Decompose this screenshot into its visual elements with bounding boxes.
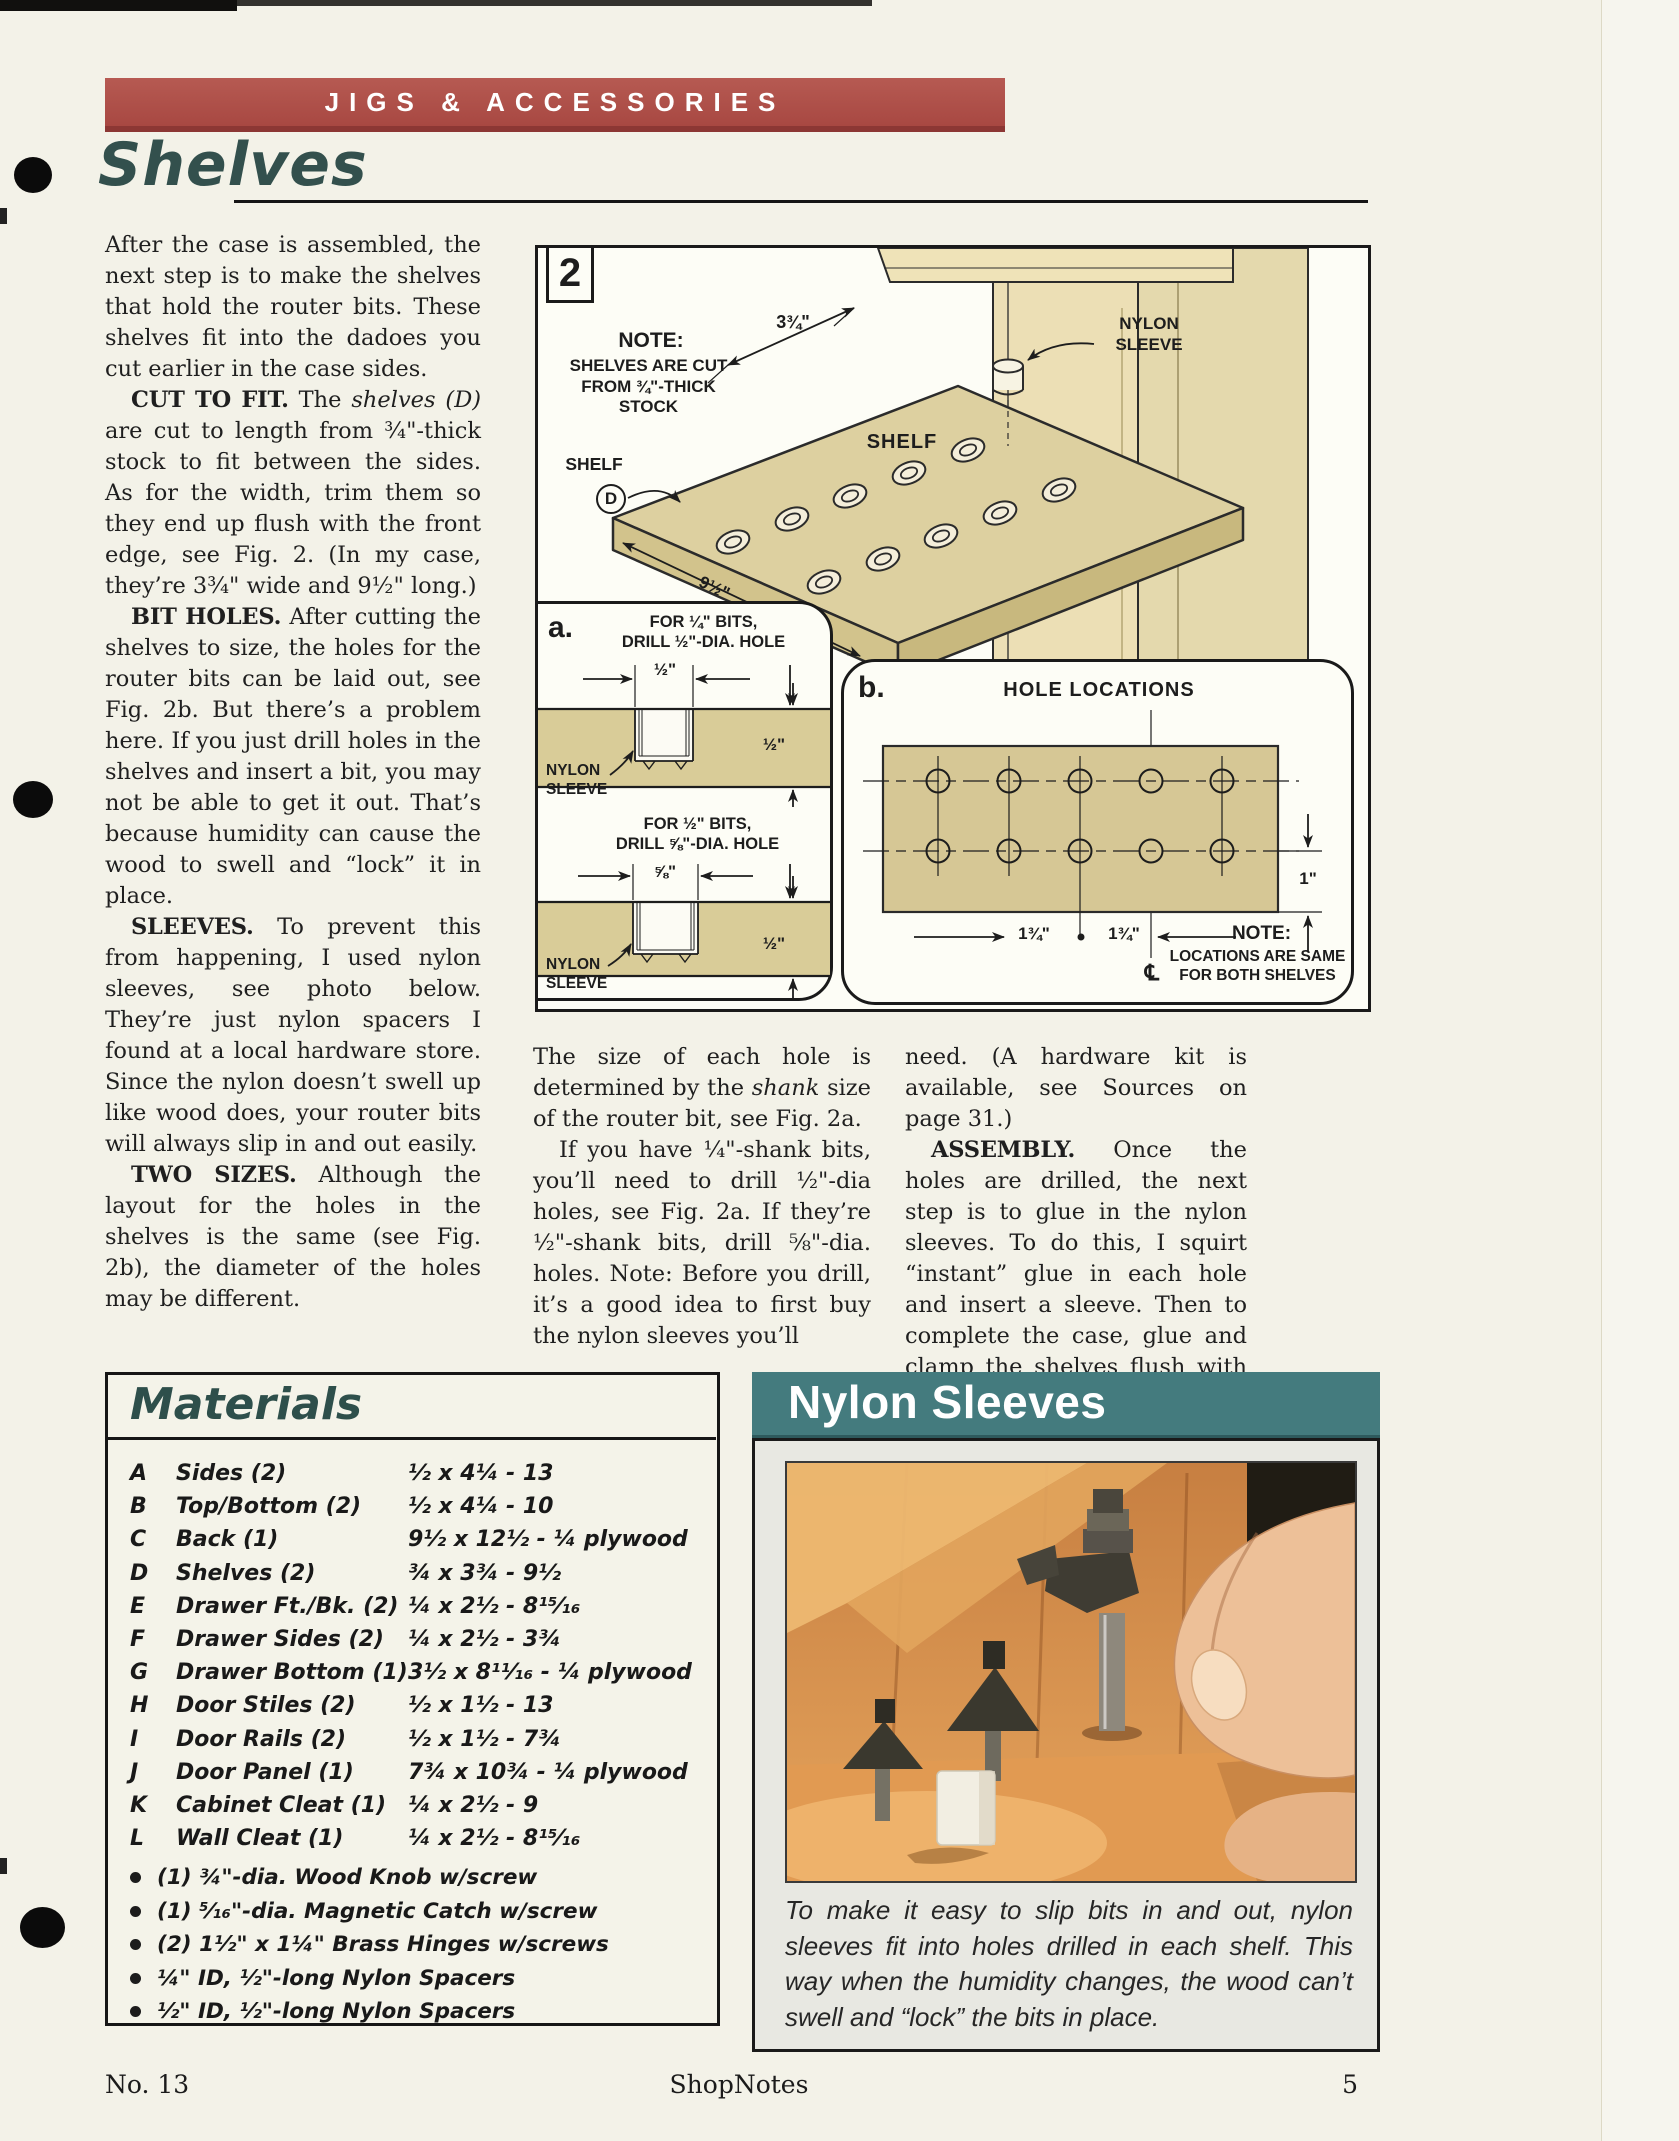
- paragraph: TWO SIZES. Although the layout for the h…: [105, 1160, 481, 1315]
- part-letter: L: [130, 1826, 176, 1851]
- panel-a-heading-1: FOR ¼" BITS, DRILL ½"-DIA. HOLE: [586, 612, 821, 652]
- part-size: ¼ x 2½ - 8¹⁵⁄₁₆: [408, 1826, 705, 1851]
- part-name: Door Stiles (2): [176, 1693, 408, 1718]
- article-column-2: The size of each hole is determined by t…: [533, 1042, 871, 1352]
- page-title: Shelves: [98, 130, 368, 200]
- part-name: Sides (2): [176, 1461, 408, 1486]
- part-letter: B: [130, 1494, 176, 1519]
- part-letter: G: [130, 1660, 176, 1685]
- photo-caption: To make it easy to slip bits in and out,…: [785, 1893, 1353, 2035]
- shelf-face-label: SHELF: [856, 430, 948, 454]
- part-name: Drawer Ft./Bk. (2): [176, 1594, 408, 1619]
- footer-page-number: 5: [1300, 2070, 1358, 2099]
- materials-row: GDrawer Bottom (1)3½ x 8¹¹⁄₁₆ - ¼ plywoo…: [130, 1660, 705, 1693]
- part-size: ¼ x 2½ - 9: [408, 1793, 705, 1818]
- part-size: ¾ x 3¾ - 9½: [408, 1561, 705, 1586]
- dim-width-label: 3¾": [758, 312, 828, 334]
- paragraph: need. (A hardware kit is available, see …: [905, 1042, 1247, 1135]
- panel-a-dim-side-2: ½": [756, 934, 792, 955]
- bullet-dot: [130, 1906, 141, 1917]
- punch-hole: [13, 781, 53, 818]
- panel-b-dim-1: 1¾": [1002, 924, 1066, 945]
- section-banner-label: JIGS & ACCESSORIES: [105, 78, 1005, 126]
- part-name: Cabinet Cleat (1): [176, 1793, 408, 1818]
- panel-b-note-title: NOTE:: [1174, 922, 1349, 945]
- materials-row: KCabinet Cleat (1)¼ x 2½ - 9: [130, 1793, 705, 1826]
- sleeve-label: NYLON SLEEVE: [1094, 314, 1204, 355]
- shelf-part-letter: D: [598, 486, 624, 511]
- materials-rule: [108, 1437, 716, 1440]
- sleeves-header-bar: Nylon Sleeves: [752, 1372, 1380, 1438]
- sleeves-photo-box: To make it easy to slip bits in and out,…: [752, 1438, 1380, 2052]
- part-size: 7¾ x 10¾ - ¼ plywood: [408, 1760, 705, 1785]
- materials-hardware-list: (1) ¾"-dia. Wood Knob w/screw (1) ⁵⁄₁₆"-…: [130, 1861, 705, 2029]
- part-letter: E: [130, 1594, 176, 1619]
- nylon-spacer: [937, 1771, 995, 1845]
- scan-edge-mark: [0, 1858, 7, 1874]
- title-rule: [234, 200, 1368, 203]
- part-letter: F: [130, 1627, 176, 1652]
- part-size: 9½ x 12½ - ¼ plywood: [408, 1527, 705, 1552]
- article-column-3: need. (A hardware kit is available, see …: [905, 1042, 1247, 1414]
- hardware-item: (2) 1½" x 1¼" Brass Hinges w/screws: [130, 1928, 705, 1962]
- hardware-item: (1) ¾"-dia. Wood Knob w/screw: [130, 1861, 705, 1895]
- note-line: STOCK: [546, 397, 751, 418]
- part-letter: A: [130, 1461, 176, 1486]
- panel-a-heading-2: FOR ½" BITS, DRILL ⅝"-DIA. HOLE: [580, 814, 815, 854]
- part-size: ¼ x 2½ - 3¾: [408, 1627, 705, 1652]
- part-name: Door Panel (1): [176, 1760, 408, 1785]
- scan-edge-mark: [0, 208, 7, 224]
- part-letter: H: [130, 1693, 176, 1718]
- sleeves-title: Nylon Sleeves: [752, 1372, 1380, 1432]
- magazine-page: JIGS & ACCESSORIES Shelves After the cas…: [0, 0, 1679, 2141]
- part-size: ¼ x 2½ - 8¹⁵⁄₁₆: [408, 1594, 705, 1619]
- photo-illustration: [787, 1463, 1355, 1881]
- part-size: ½ x 1½ - 13: [408, 1693, 705, 1718]
- figure-note-body: SHELVES ARE CUT FROM ¾"-THICK STOCK: [546, 356, 751, 418]
- article-column-1: After the case is assembled, the next st…: [105, 230, 481, 1315]
- materials-row: EDrawer Ft./Bk. (2)¼ x 2½ - 8¹⁵⁄₁₆: [130, 1594, 705, 1627]
- bullet-dot: [130, 1939, 141, 1950]
- panel-a-sleeve-label-2: NYLON SLEEVE: [546, 956, 638, 993]
- scan-top-strip-dark: [0, 0, 237, 11]
- materials-list: ASides (2)½ x 4¼ - 13 BTop/Bottom (2)½ x…: [130, 1461, 705, 1859]
- materials-row: LWall Cleat (1)¼ x 2½ - 8¹⁵⁄₁₆: [130, 1826, 705, 1859]
- shelf-callout-label: SHELF: [554, 454, 634, 475]
- hardware-item: ½" ID, ½"-long Nylon Spacers: [130, 1995, 705, 2029]
- panel-b-dim-2: 1¾": [1092, 924, 1156, 945]
- hardware-item: ¼" ID, ½"-long Nylon Spacers: [130, 1962, 705, 1996]
- part-name: Wall Cleat (1): [176, 1826, 408, 1851]
- materials-row: DShelves (2)¾ x 3¾ - 9½: [130, 1561, 705, 1594]
- materials-row: JDoor Panel (1)7¾ x 10¾ - ¼ plywood: [130, 1760, 705, 1793]
- paragraph: The size of each hole is determined by t…: [533, 1042, 871, 1135]
- page-right-edge: [1601, 0, 1679, 2141]
- materials-box: Materials ASides (2)½ x 4¼ - 13 BTop/Bot…: [105, 1372, 720, 2026]
- paragraph: BIT HOLES. After cutting the shelves to …: [105, 602, 481, 912]
- part-name: Drawer Sides (2): [176, 1627, 408, 1652]
- panel-a-sleeve-label-1: NYLON SLEEVE: [546, 762, 638, 799]
- part-name: Shelves (2): [176, 1561, 408, 1586]
- part-size: ½ x 4¼ - 10: [408, 1494, 705, 1519]
- panel-b-dim-edge: 1": [1286, 869, 1330, 890]
- part-letter: C: [130, 1527, 176, 1552]
- part-size: ½ x 1½ - 7¾: [408, 1727, 705, 1752]
- panel-a-dim-top-1: ½": [634, 660, 696, 681]
- part-letter: D: [130, 1561, 176, 1586]
- figure-2: 2 NOTE: SHELVES ARE CUT FROM ¾"-THICK ST…: [535, 245, 1371, 1012]
- bullet-dot: [130, 2006, 141, 2017]
- bullet-dot: [130, 1973, 141, 1984]
- footer-issue: No. 13: [105, 2070, 189, 2099]
- note-line: SHELVES ARE CUT: [546, 356, 751, 377]
- part-name: Top/Bottom (2): [176, 1494, 408, 1519]
- sleeves-photo: [785, 1461, 1357, 1883]
- part-size: ½ x 4¼ - 13: [408, 1461, 705, 1486]
- figure-number: 2: [546, 245, 594, 303]
- footer-brand: ShopNotes: [599, 2070, 879, 2099]
- note-line: FROM ¾"-THICK: [546, 377, 751, 398]
- materials-row: IDoor Rails (2)½ x 1½ - 7¾: [130, 1727, 705, 1760]
- section-banner: JIGS & ACCESSORIES: [105, 78, 1005, 132]
- part-letter: K: [130, 1793, 176, 1818]
- paragraph: If you have ¼"-shank bits, you’ll need t…: [533, 1135, 871, 1352]
- panel-a-dim-side-1: ½": [756, 735, 792, 756]
- materials-row: FDrawer Sides (2)¼ x 2½ - 3¾: [130, 1627, 705, 1660]
- part-name: Drawer Bottom (1): [176, 1660, 408, 1685]
- part-name: Back (1): [176, 1527, 408, 1552]
- part-name: Door Rails (2): [176, 1727, 408, 1752]
- paragraph: CUT TO FIT. The shelves (D) are cut to l…: [105, 385, 481, 602]
- part-letter: I: [130, 1727, 176, 1752]
- bullet-dot: [130, 1872, 141, 1883]
- paragraph: After the case is assembled, the next st…: [105, 230, 481, 385]
- shelf-part-circle: D: [596, 484, 626, 514]
- panel-a-dim-top-2: ⅝": [632, 862, 698, 883]
- part-size: 3½ x 8¹¹⁄₁₆ - ¼ plywood: [408, 1660, 705, 1685]
- figure-panel-b: b. HOLE LOCATIONS: [841, 659, 1354, 1005]
- part-letter: J: [130, 1760, 176, 1785]
- materials-row: BTop/Bottom (2)½ x 4¼ - 10: [130, 1494, 705, 1527]
- paragraph: SLEEVES. To prevent this from happening,…: [105, 912, 481, 1160]
- hardware-item: (1) ⁵⁄₁₆"-dia. Magnetic Catch w/screw: [130, 1895, 705, 1929]
- figure-note-title: NOTE:: [556, 328, 746, 354]
- materials-row: CBack (1)9½ x 12½ - ¼ plywood: [130, 1527, 705, 1560]
- punch-hole: [14, 157, 52, 193]
- punch-hole: [20, 1907, 65, 1948]
- figure-panel-a: a. FOR ¼" BITS, DRILL ½"-DIA. HOLE: [535, 601, 833, 1001]
- materials-title: Materials: [130, 1379, 362, 1430]
- materials-row: ASides (2)½ x 4¼ - 13: [130, 1461, 705, 1494]
- panel-b-note-body: LOCATIONS ARE SAME FOR BOTH SHELVES: [1160, 948, 1355, 986]
- materials-row: HDoor Stiles (2)½ x 1½ - 13: [130, 1693, 705, 1726]
- panel-a-tag: a.: [548, 610, 573, 646]
